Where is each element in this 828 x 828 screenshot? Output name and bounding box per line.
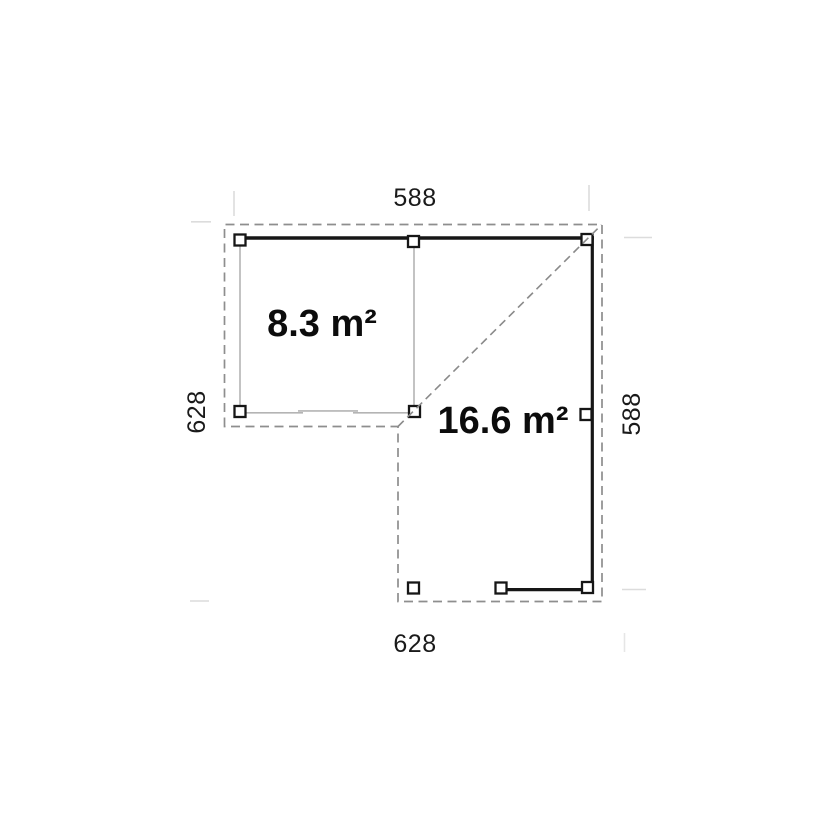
post-bottom-right	[582, 582, 593, 593]
dimension-bottom: 628	[393, 630, 436, 658]
area-label-terrace: 16.6 m²	[438, 400, 569, 442]
area-labels: 8.3 m² 16.6 m²	[267, 303, 568, 442]
dimension-top: 588	[393, 184, 436, 212]
post-bottom-left	[408, 583, 419, 594]
post-right-middle	[581, 409, 592, 420]
extension-tick-lines	[190, 185, 652, 601]
post-top-left	[235, 235, 246, 246]
area-label-room: 8.3 m²	[267, 303, 377, 345]
floorplan-drawing: 588 628 628 588 8.3 m² 16.6 m²	[0, 0, 828, 828]
valley-diagonal	[398, 225, 602, 427]
roof-valley-line	[398, 225, 602, 427]
floorplan-diagram: 588 628 628 588 8.3 m² 16.6 m²	[0, 0, 828, 828]
post-top-middle	[408, 236, 419, 247]
post-inner-corner	[409, 406, 420, 417]
dimension-left: 628	[183, 390, 211, 433]
post-bottom-middle	[496, 583, 507, 594]
post-middle-left	[235, 406, 246, 417]
dimension-right: 588	[618, 392, 646, 435]
